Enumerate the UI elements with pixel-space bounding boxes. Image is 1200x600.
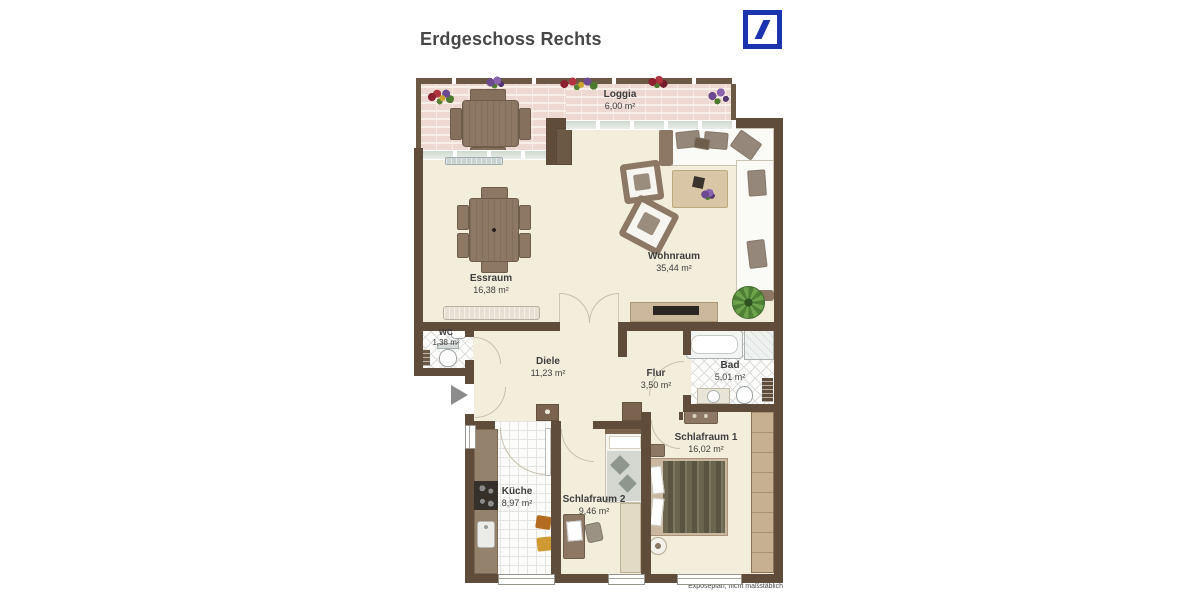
window-loggia-wohnraum xyxy=(566,120,736,130)
room-area: 11,23 m² xyxy=(531,368,566,378)
wardrobe xyxy=(751,409,774,573)
desk-papers xyxy=(566,520,583,541)
room-label-kueche: Küche 8,97 m² xyxy=(502,486,533,508)
wall-bottom-d xyxy=(740,574,783,583)
stove xyxy=(474,481,498,510)
towel-radiator xyxy=(762,378,773,402)
wall-top-right xyxy=(736,118,783,128)
room-area: 5,01 m² xyxy=(715,372,746,382)
sofa-armrest xyxy=(659,129,673,166)
dining-table xyxy=(469,198,519,262)
wall-bottom-c xyxy=(643,574,677,583)
double-door-leaf-right xyxy=(618,293,619,322)
window-kueche-south xyxy=(498,574,555,585)
room-area: 16,02 m² xyxy=(675,444,738,454)
room-area: 8,97 m² xyxy=(502,498,533,508)
tall-cabinet xyxy=(556,128,572,165)
armchair-cushion xyxy=(636,211,660,235)
patio-chair xyxy=(450,108,462,140)
flower-box-icon xyxy=(428,86,454,108)
bad-door-threshold xyxy=(683,355,691,395)
toilet xyxy=(736,386,753,404)
window-s1-south xyxy=(677,574,742,585)
vanity-counter xyxy=(697,388,730,404)
room-label-flur: Flur 3,50 m² xyxy=(641,368,672,390)
room-area: 1,38 m² xyxy=(432,338,459,347)
armchair-cushion xyxy=(633,173,651,191)
wall-left-lower-a xyxy=(465,376,474,384)
radiator xyxy=(422,350,430,366)
hall-cabinet xyxy=(622,402,642,421)
wall-diele-s2 xyxy=(593,421,641,429)
room-name: Loggia xyxy=(604,89,637,101)
patio-chair xyxy=(519,108,531,140)
double-door-leaf-left xyxy=(559,293,560,322)
room-area: 6,00 m² xyxy=(604,101,637,111)
room-name: Diele xyxy=(531,356,566,368)
wall-s1-top-jamb xyxy=(679,412,683,420)
patio-table xyxy=(462,100,519,147)
room-area: 35,44 m² xyxy=(648,263,700,273)
bathtub xyxy=(686,330,743,359)
floor-plan-page: Erdgeschoss Rechts xyxy=(0,0,1200,600)
room-label-schlafraum1: Schlafraum 1 16,02 m² xyxy=(675,432,738,454)
entrance-arrow-icon xyxy=(451,385,468,405)
nightstand xyxy=(650,444,665,457)
window-kueche-west xyxy=(465,425,476,449)
wall-bad-bottom xyxy=(683,404,774,412)
double-bed-duvet xyxy=(663,461,725,533)
dining-chair xyxy=(519,233,531,258)
wall-wohnraum-bottom xyxy=(618,322,783,331)
floor-lamp xyxy=(649,537,667,555)
dining-chair xyxy=(519,205,531,230)
wall-bottom-b xyxy=(553,574,608,583)
radiator xyxy=(443,306,540,320)
table-flowers-icon xyxy=(701,189,715,200)
wall-kueche-s2-divider xyxy=(551,421,561,574)
toilet xyxy=(439,349,457,367)
room-label-diele: Diele 11,23 m² xyxy=(531,356,566,378)
loggia-railing-right xyxy=(731,84,736,120)
dining-chair xyxy=(457,205,469,230)
tv-lowboard xyxy=(630,302,718,322)
table-decor xyxy=(692,176,705,189)
dining-chair xyxy=(481,261,508,273)
logo-slash-icon xyxy=(755,20,771,39)
deutsche-bank-logo-icon xyxy=(743,10,782,49)
room-area: 9,46 m² xyxy=(563,506,626,516)
wall-stub-diele-flur xyxy=(618,331,627,357)
wall-bedroom-divider xyxy=(641,412,651,574)
room-name: WC xyxy=(432,328,459,338)
room-label-loggia: Loggia 6,00 m² xyxy=(604,89,637,111)
room-label-wc: WC 1,38 m² xyxy=(432,328,459,347)
wall-left-upper xyxy=(414,148,423,376)
bathtub-basin xyxy=(691,335,738,354)
shoe-cabinet xyxy=(536,404,559,421)
room-name: Wohnraum xyxy=(648,251,700,263)
tv xyxy=(653,306,699,315)
pillow xyxy=(609,436,641,449)
flower-box-icon xyxy=(704,84,732,108)
wall-right xyxy=(774,118,783,583)
room-label-wohnraum: Wohnraum 35,44 m² xyxy=(648,251,700,273)
room-label-schlafraum2: Schlafraum 2 9,46 m² xyxy=(563,494,626,516)
desk xyxy=(563,514,585,559)
kueche-door-leaf xyxy=(545,428,551,476)
wall-bottom-a xyxy=(465,574,498,583)
kitchen-sink xyxy=(477,521,495,548)
sofa-cushion xyxy=(746,239,767,269)
floor-plan: Loggia 6,00 m² Wohnraum 35,44 m² Essraum… xyxy=(0,0,1200,600)
loggia-railing-left xyxy=(416,84,421,150)
wall-wc-right-a xyxy=(465,331,474,337)
room-label-bad: Bad 5,01 m² xyxy=(715,360,746,382)
wall-bad-left-b xyxy=(683,395,691,404)
sofa-cushion xyxy=(747,169,767,196)
coffee-table xyxy=(672,170,728,208)
kitchen-decor xyxy=(535,515,552,530)
room-name: Schlafraum 1 xyxy=(675,432,738,444)
radiator xyxy=(445,157,503,165)
room-label-essraum: Essraum 16,38 m² xyxy=(470,273,512,295)
shower xyxy=(744,329,774,360)
plant-icon xyxy=(732,286,765,319)
flower-box-icon xyxy=(647,76,669,89)
room-name: Küche xyxy=(502,486,533,498)
wall-wc-right-b xyxy=(465,360,474,376)
room-name: Flur xyxy=(641,368,672,380)
room-area: 16,38 m² xyxy=(470,285,512,295)
flower-box-icon xyxy=(484,76,506,89)
room-area: 3,50 m² xyxy=(641,380,672,390)
room-name: Bad xyxy=(715,360,746,372)
window-s2-south xyxy=(608,574,645,585)
dining-chair xyxy=(457,233,469,258)
sink-basin xyxy=(707,390,720,403)
double-door-threshold xyxy=(560,322,618,331)
flower-box-icon xyxy=(558,76,600,92)
wall-bad-left-a xyxy=(683,331,691,355)
room-name: Essraum xyxy=(470,273,512,285)
room-name: Schlafraum 2 xyxy=(563,494,626,506)
